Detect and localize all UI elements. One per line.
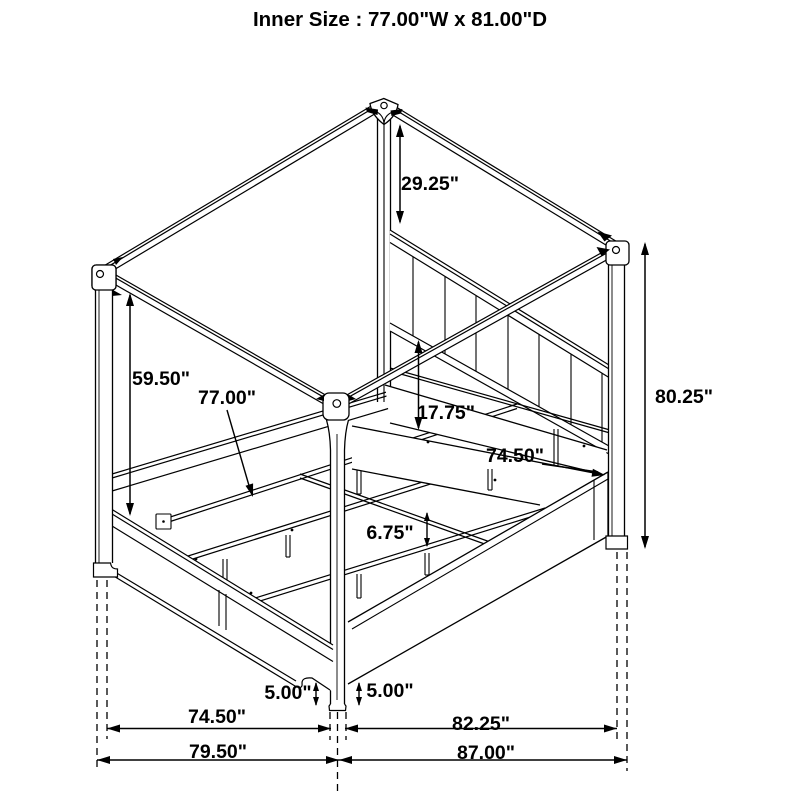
svg-text:74.50": 74.50" bbox=[486, 445, 544, 467]
svg-text:79.50": 79.50" bbox=[189, 741, 247, 763]
svg-text:5.00": 5.00" bbox=[264, 682, 311, 704]
svg-text:29.25": 29.25" bbox=[401, 173, 459, 195]
svg-text:59.50": 59.50" bbox=[132, 368, 190, 390]
svg-text:82.25": 82.25" bbox=[452, 713, 510, 735]
svg-text:17.75": 17.75" bbox=[417, 402, 475, 424]
svg-text:87.00": 87.00" bbox=[457, 742, 515, 764]
svg-text:77.00": 77.00" bbox=[198, 387, 256, 409]
svg-text:6.75": 6.75" bbox=[366, 522, 413, 544]
svg-text:Inner Size : 77.00"W x 81.00"D: Inner Size : 77.00"W x 81.00"D bbox=[253, 8, 547, 31]
svg-text:80.25": 80.25" bbox=[655, 386, 713, 408]
svg-text:74.50": 74.50" bbox=[188, 706, 246, 728]
svg-text:5.00": 5.00" bbox=[366, 680, 413, 702]
